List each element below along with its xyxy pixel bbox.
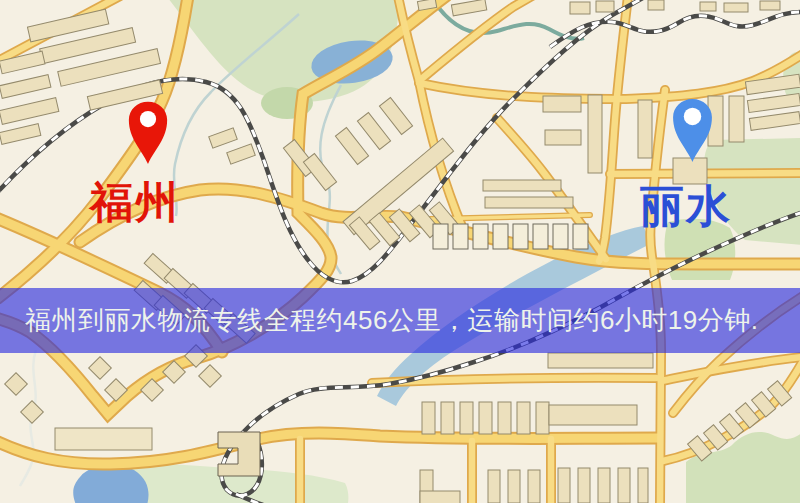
destination-pin-icon bbox=[669, 96, 716, 164]
route-info-banner: 福州到丽水物流专线全程约456公里，运输时间约6小时19分钟. bbox=[0, 288, 800, 353]
map-screenshot: 福州 丽水 福州到丽水物流专线全程约456公里，运输时间约6小时19分钟. bbox=[0, 0, 800, 503]
origin-label: 福州 bbox=[90, 174, 180, 232]
destination-label: 丽水 bbox=[640, 177, 732, 236]
origin-pin bbox=[125, 99, 171, 170]
map-canvas bbox=[0, 0, 800, 503]
origin-pin-icon bbox=[125, 99, 171, 166]
route-info-text: 福州到丽水物流专线全程约456公里，运输时间约6小时19分钟. bbox=[0, 288, 800, 353]
destination-pin bbox=[669, 96, 716, 168]
